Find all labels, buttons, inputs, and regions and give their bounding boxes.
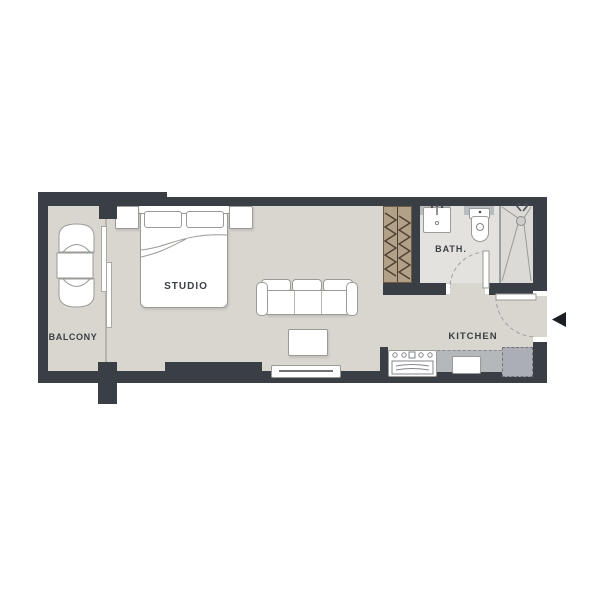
entry-door-threshold bbox=[533, 296, 547, 338]
sliding-door-panel bbox=[106, 262, 112, 328]
sofa-seat-divider bbox=[321, 291, 322, 314]
wardrobe bbox=[383, 206, 412, 283]
toilet-bowl bbox=[471, 216, 489, 242]
bottom-wall-pillar bbox=[165, 362, 262, 374]
bed-pillow-right bbox=[186, 211, 224, 228]
right-wall-lower bbox=[533, 340, 547, 383]
vanity-sink bbox=[423, 207, 451, 233]
tv-screen-line bbox=[279, 370, 333, 372]
floor-plan: STUDIO BALCONY BATH. KITCHEN bbox=[0, 0, 600, 600]
balcony-divider-stub-bottom bbox=[98, 362, 117, 404]
right-wall-upper bbox=[533, 197, 547, 295]
bath-door-threshold bbox=[450, 283, 485, 295]
range bbox=[388, 350, 437, 377]
fridge bbox=[502, 347, 533, 377]
studio-label: STUDIO bbox=[146, 281, 226, 292]
kitchen-label: KITCHEN bbox=[433, 331, 513, 342]
top-wall bbox=[167, 197, 547, 206]
sofa-seat-divider bbox=[294, 291, 295, 314]
coffee-table bbox=[288, 329, 328, 356]
nightstand-right bbox=[229, 206, 253, 229]
balcony-divider-stub-top bbox=[99, 203, 117, 219]
sofa-seat bbox=[266, 290, 348, 315]
balcony-label: BALCONY bbox=[33, 332, 113, 342]
bath-door-jamb bbox=[446, 284, 450, 294]
bath-bottom-wall bbox=[383, 283, 446, 295]
bed-pillow-left bbox=[144, 211, 182, 228]
sofa-armrest-right bbox=[346, 282, 358, 316]
entrance-arrow-icon bbox=[552, 312, 566, 327]
kitchen-stub-wall bbox=[380, 347, 388, 371]
left-wall bbox=[38, 192, 48, 383]
bath-door-jamb bbox=[485, 284, 489, 294]
entry-door-jamb bbox=[533, 337, 547, 342]
kitchen-sink bbox=[452, 356, 481, 374]
entry-door-jamb bbox=[533, 291, 547, 296]
shower-floor bbox=[501, 206, 533, 283]
bath-label: BATH. bbox=[411, 244, 491, 254]
sofa-armrest-left bbox=[256, 282, 268, 316]
nightstand-left bbox=[115, 206, 139, 229]
